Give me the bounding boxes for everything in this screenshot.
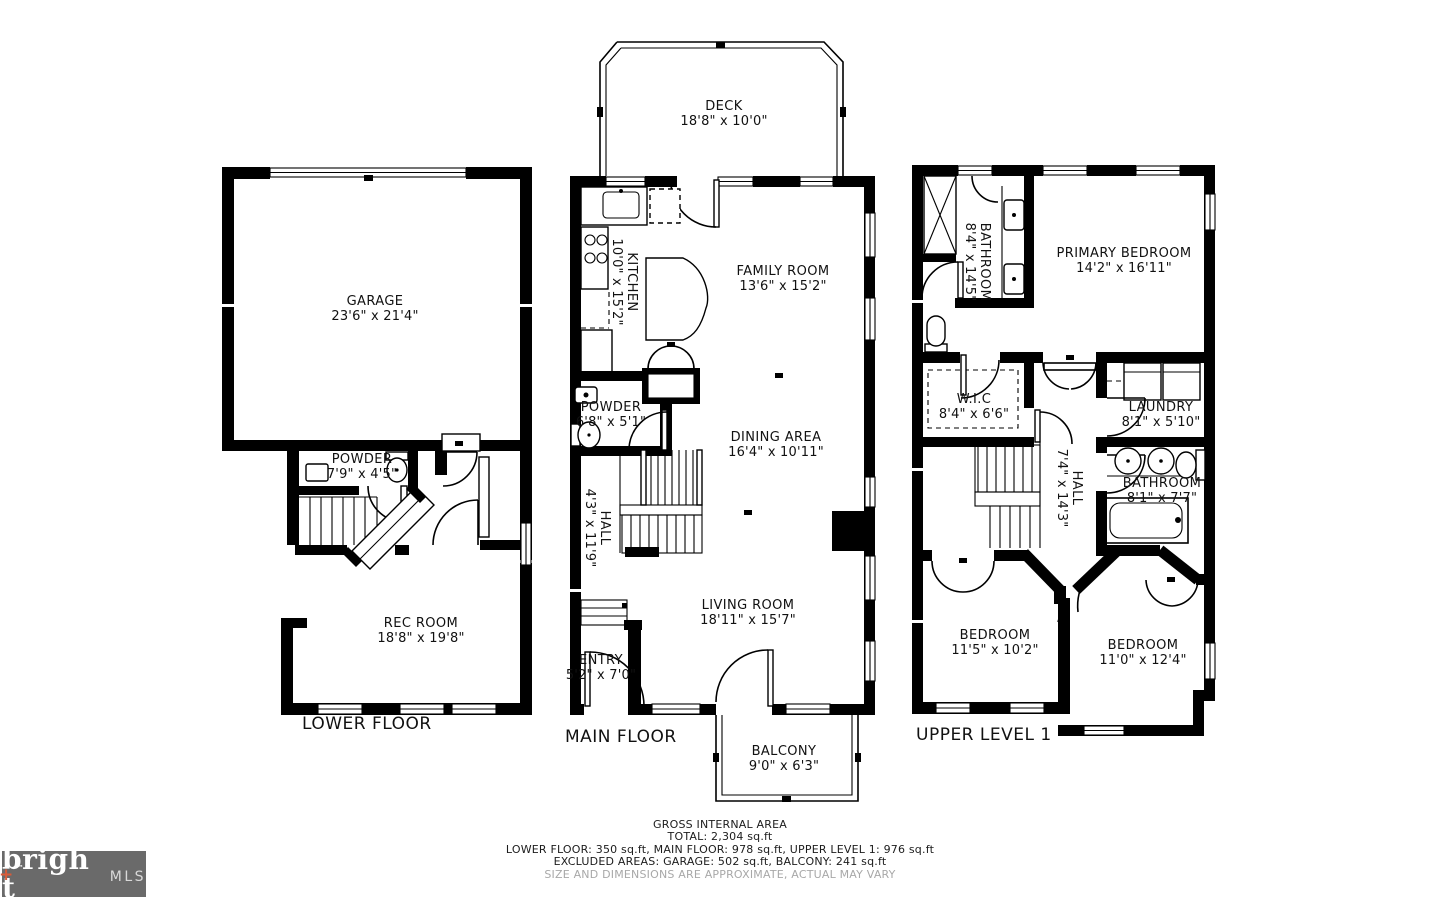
room-name: GARAGE	[331, 294, 418, 309]
room-name: HALL	[1069, 449, 1084, 528]
room-label-wic: W.I.C 8'4" x 6'6"	[939, 392, 1009, 422]
room-dims: 9'0" x 6'3"	[749, 759, 819, 774]
disclaimer: SIZE AND DIMENSIONS ARE APPROXIMATE, ACT…	[0, 869, 1440, 881]
room-label-bathroom-primary: BATHROOM 8'4" x 14'5"	[962, 223, 992, 302]
room-dims: 6'8" x 5'1"	[576, 415, 646, 430]
room-name: HALL	[597, 489, 612, 568]
room-dims: 5'2" x 7'0"	[566, 668, 636, 683]
room-label-bathroom-hall: BATHROOM 8'1" x 7'7"	[1123, 476, 1201, 506]
room-label-hall-upper: HALL 7'4" x 14'3"	[1054, 449, 1084, 528]
floor-label-lower: LOWER FLOOR	[302, 714, 432, 734]
room-label-powder-lower: POWDER 7'9" x 4'5"	[327, 452, 397, 482]
room-label-primary-bedroom: PRIMARY BEDROOM 14'2" x 16'11"	[1057, 246, 1192, 276]
room-label-rec-room: REC ROOM 18'8" x 19'8"	[377, 616, 464, 646]
trademark-symbol: ™	[16, 863, 24, 872]
room-label-bedroom-left: BEDROOM 11'5" x 10'2"	[951, 628, 1038, 658]
room-name: BATHROOM	[1123, 476, 1201, 491]
room-name: POWDER	[576, 400, 646, 415]
room-label-bedroom-right: BEDROOM 11'0" x 12'4"	[1099, 638, 1186, 668]
room-dims: 16'4" x 10'11"	[728, 445, 824, 460]
room-label-dining-area: DINING AREA 16'4" x 10'11"	[728, 430, 824, 460]
room-dims: 8'1" x 5'10"	[1122, 415, 1201, 430]
room-name: POWDER	[327, 452, 397, 467]
room-dims: 18'8" x 10'0"	[680, 114, 767, 129]
room-name: PRIMARY BEDROOM	[1057, 246, 1192, 261]
room-name: REC ROOM	[377, 616, 464, 631]
room-label-garage: GARAGE 23'6" x 21'4"	[331, 294, 418, 324]
floorplan-canvas: GARAGE 23'6" x 21'4" POWDER 7'9" x 4'5" …	[0, 0, 1440, 899]
room-dims: 14'2" x 16'11"	[1057, 261, 1192, 276]
logo-plus-icon: +	[0, 867, 14, 884]
room-name: W.I.C	[939, 392, 1009, 407]
room-label-laundry: LAUNDRY 8'1" x 5'10"	[1122, 400, 1201, 430]
excluded-areas: EXCLUDED AREAS: GARAGE: 502 sq.ft, BALCO…	[0, 856, 1440, 868]
area-summary: GROSS INTERNAL AREA TOTAL: 2,304 sq.ft L…	[0, 819, 1440, 881]
logo-wordmark: bright+™	[2, 846, 103, 899]
room-dims: 13'6" x 15'2"	[737, 279, 830, 294]
room-name: LAUNDRY	[1122, 400, 1201, 415]
room-label-deck: DECK 18'8" x 10'0"	[680, 99, 767, 129]
room-name: DECK	[680, 99, 767, 114]
room-name: LIVING ROOM	[700, 598, 796, 613]
room-name: BALCONY	[749, 744, 819, 759]
room-dims: 8'1" x 7'7"	[1123, 491, 1201, 506]
room-dims: 11'0" x 12'4"	[1099, 653, 1186, 668]
room-dims: 7'4" x 14'3"	[1054, 449, 1069, 528]
room-dims: 11'5" x 10'2"	[951, 643, 1038, 658]
room-name: FAMILY ROOM	[737, 264, 830, 279]
room-label-hall-main: HALL 4'3" x 11'9"	[582, 489, 612, 568]
floor-plan-drawing	[0, 0, 1440, 899]
room-dims: 7'9" x 4'5"	[327, 467, 397, 482]
brightmls-logo: bright+™ MLS	[2, 851, 146, 897]
room-name: ENTRY	[566, 653, 636, 668]
room-dims: 8'4" x 6'6"	[939, 407, 1009, 422]
room-name: BATHROOM	[977, 223, 992, 302]
fireplace	[832, 511, 875, 551]
logo-mls-text: MLS	[110, 869, 146, 885]
room-dims: 18'11" x 15'7"	[700, 613, 796, 628]
room-name: DINING AREA	[728, 430, 824, 445]
room-dims: 10'0" x 15'2"	[609, 238, 624, 325]
total-area: TOTAL: 2,304 sq.ft	[0, 831, 1440, 843]
room-label-living-room: LIVING ROOM 18'11" x 15'7"	[700, 598, 796, 628]
room-name: KITCHEN	[624, 238, 639, 325]
room-label-entry: ENTRY 5'2" x 7'0"	[566, 653, 636, 683]
room-name: BEDROOM	[951, 628, 1038, 643]
room-name: BEDROOM	[1099, 638, 1186, 653]
room-label-family-room: FAMILY ROOM 13'6" x 15'2"	[737, 264, 830, 294]
room-label-balcony: BALCONY 9'0" x 6'3"	[749, 744, 819, 774]
floor-label-main: MAIN FLOOR	[565, 727, 677, 747]
room-dims: 4'3" x 11'9"	[582, 489, 597, 568]
room-dims: 8'4" x 14'5"	[962, 223, 977, 302]
room-dims: 23'6" x 21'4"	[331, 309, 418, 324]
room-label-kitchen: KITCHEN 10'0" x 15'2"	[609, 238, 639, 325]
floor-label-upper: UPPER LEVEL 1	[916, 725, 1052, 745]
room-label-powder-main: POWDER 6'8" x 5'1"	[576, 400, 646, 430]
room-dims: 18'8" x 19'8"	[377, 631, 464, 646]
